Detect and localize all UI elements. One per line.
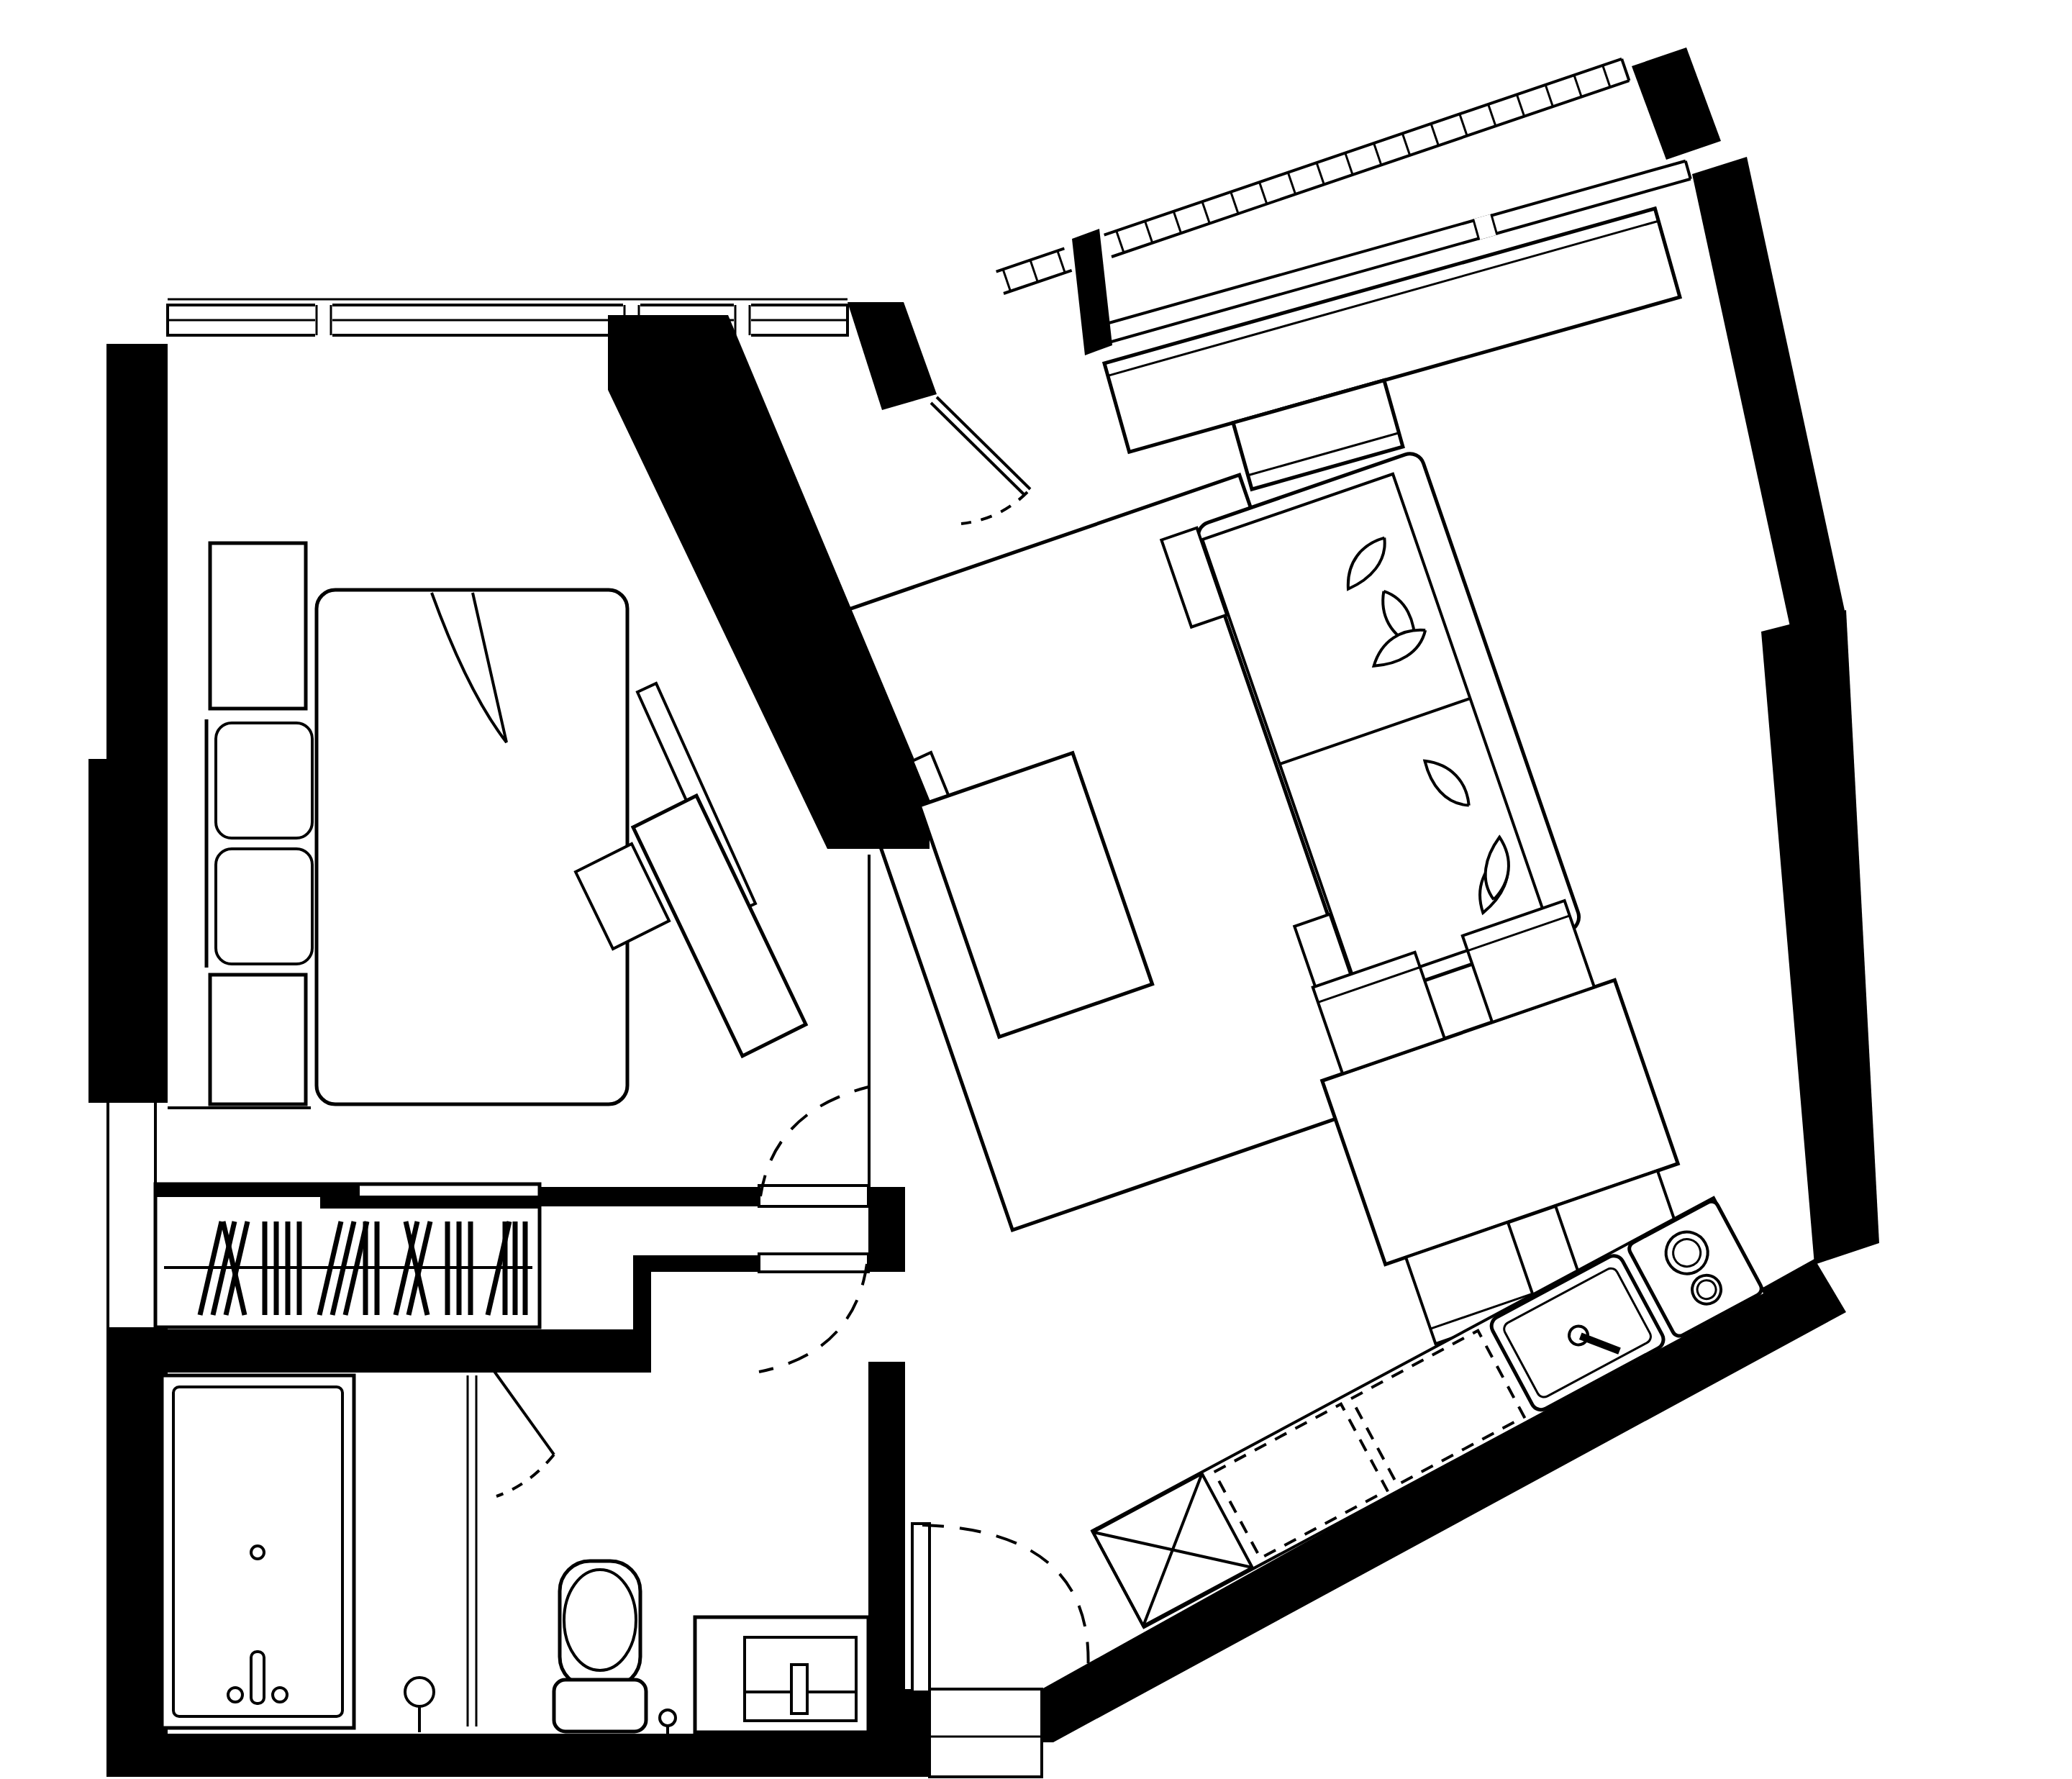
balcony-railing xyxy=(1104,59,1622,235)
balcony-railing-rungs xyxy=(1030,260,1037,282)
toilet-tank xyxy=(554,1680,646,1732)
balcony-door-leaf xyxy=(937,397,1030,489)
pier-entry-left xyxy=(848,302,937,410)
wall-bedroom-left xyxy=(88,344,168,1103)
wall-hall-right-lower xyxy=(868,1362,905,1734)
living-window-mullion xyxy=(1473,214,1497,240)
balcony-railing-rungs xyxy=(1574,75,1581,96)
balcony-railing-rungs xyxy=(1202,201,1209,223)
wall-right-lower xyxy=(1761,610,1879,1265)
balcony-railing-rungs xyxy=(1173,211,1181,233)
vanity xyxy=(695,1617,868,1732)
balcony-railing-rungs xyxy=(1003,269,1010,291)
balcony-railing-rungs xyxy=(1145,221,1152,242)
balcony-door-leaf xyxy=(931,403,1024,495)
balcony-railing-rungs xyxy=(1374,143,1381,165)
shower-door-swing-arc xyxy=(496,1455,554,1496)
balcony-railing-rungs xyxy=(1288,173,1295,194)
balcony-railing-rungs xyxy=(1489,104,1496,126)
entry-door-leaf xyxy=(912,1524,930,1692)
bedroom-window-mullion xyxy=(734,304,751,337)
entry-door-swing-arc xyxy=(922,1525,1089,1673)
pillow xyxy=(216,849,312,964)
pier-corner-ne xyxy=(1632,47,1721,160)
balcony-railing-rungs xyxy=(1317,163,1324,184)
wall-bath-left xyxy=(106,1327,168,1777)
balcony-railing-rungs xyxy=(1402,134,1409,155)
wall-vestibule xyxy=(633,1255,759,1272)
balcony-railing-rungs xyxy=(1545,85,1553,106)
balcony-railing-rungs xyxy=(1117,231,1124,252)
toilet-paper-holder xyxy=(660,1710,676,1726)
entry-door-sill xyxy=(930,1689,1042,1777)
wall-bath-bottom xyxy=(168,1734,905,1777)
nightstand xyxy=(210,543,306,709)
bathroom-door-leaf xyxy=(759,1254,868,1272)
living-window-end xyxy=(1686,161,1691,179)
corridor-door-leaf xyxy=(759,1186,868,1206)
shower-drain xyxy=(405,1678,434,1706)
coffee-table xyxy=(919,753,1152,1037)
pier-entry-mid xyxy=(1072,229,1112,355)
balcony-railing-rungs xyxy=(1603,65,1610,87)
floor-plan-canvas xyxy=(0,0,2072,1779)
balcony-railing-rungs xyxy=(1231,192,1238,214)
bathroom-door-swing-arc xyxy=(759,1264,867,1372)
wall-corridor xyxy=(540,1187,759,1206)
balcony-railing xyxy=(1004,270,1072,294)
wall-vestibule-stub xyxy=(633,1272,651,1329)
bathtub-spout xyxy=(251,1652,264,1703)
toilet-body xyxy=(560,1561,640,1687)
pillow xyxy=(216,723,312,838)
wall-hall-right-upper xyxy=(868,1187,905,1272)
wardrobe-track xyxy=(320,1196,540,1209)
balcony-railing-rungs xyxy=(1431,124,1438,145)
balcony-railing-rungs xyxy=(1058,251,1065,273)
balcony-door-swing-arc xyxy=(961,492,1027,524)
bedroom-window-mullion xyxy=(315,304,332,337)
balcony-railing-rungs xyxy=(1517,94,1524,116)
vanity-faucet xyxy=(791,1665,807,1714)
balcony-railing-rungs xyxy=(1460,114,1467,135)
wardrobe-track xyxy=(155,1184,360,1197)
wall-right-upper xyxy=(1692,157,1846,633)
balcony-railing-rungs xyxy=(1345,153,1353,175)
balcony-railing-rungs xyxy=(1260,182,1267,204)
nightstand xyxy=(210,975,306,1104)
corridor-door-swing-arc xyxy=(760,1087,868,1196)
floor-plan xyxy=(0,0,2072,1779)
balcony-railing-end xyxy=(1622,59,1629,81)
wall-bath-top xyxy=(168,1329,651,1373)
wall-entry-stub xyxy=(905,1689,930,1777)
balcony-railing xyxy=(1112,81,1629,257)
